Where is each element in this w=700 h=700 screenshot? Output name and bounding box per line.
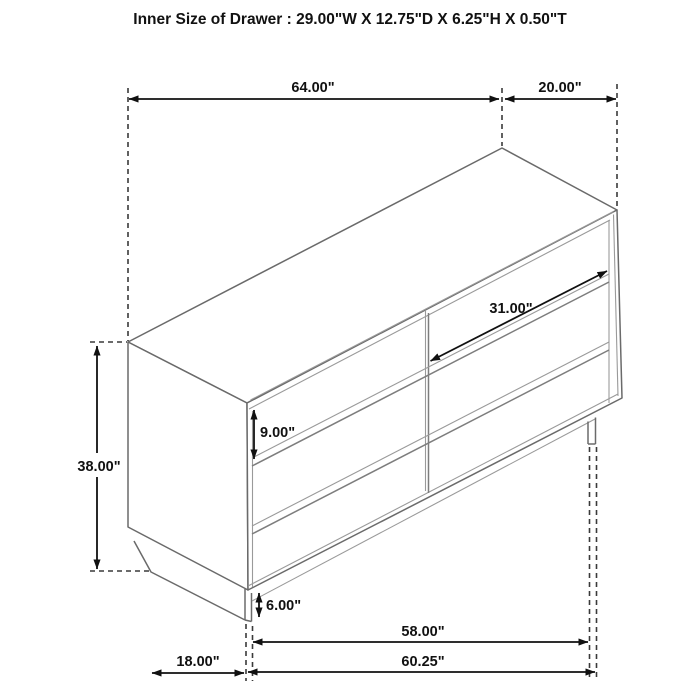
page-title: Inner Size of Drawer : 29.00"W X 12.75"D…	[133, 11, 567, 28]
dim-label-drawer-front-height: 9.00"	[260, 425, 295, 441]
dim-overall-height: 38.00"	[70, 346, 127, 569]
dim-label-overall-width: 64.00"	[291, 80, 334, 96]
dim-label-base-side-depth: 18.00"	[176, 654, 219, 670]
dim-label-drawer-width: 31.00"	[489, 301, 532, 317]
dim-base-height: 6.00"	[259, 593, 301, 617]
dim-label-base-height: 6.00"	[266, 598, 301, 614]
dim-overall-depth: 20.00"	[505, 80, 616, 99]
dim-base-outer-width: 60.25"	[248, 654, 595, 672]
dim-label-overall-height: 38.00"	[77, 459, 120, 475]
dim-base-side-depth: 18.00"	[152, 654, 244, 673]
dresser-dimension-diagram: Inner Size of Drawer : 29.00"W X 12.75"D…	[0, 0, 700, 700]
dim-label-overall-depth: 20.00"	[538, 80, 581, 96]
dim-overall-width: 64.00"	[129, 80, 499, 99]
diagram-canvas: Inner Size of Drawer : 29.00"W X 12.75"D…	[0, 0, 700, 700]
front-left-leg-bottom	[245, 620, 252, 622]
cabinet-outline	[128, 148, 622, 590]
dim-label-base-inner-width: 58.00"	[401, 624, 444, 640]
dim-base-inner-width: 58.00"	[253, 624, 588, 642]
dim-label-base-outer-width: 60.25"	[401, 654, 444, 670]
